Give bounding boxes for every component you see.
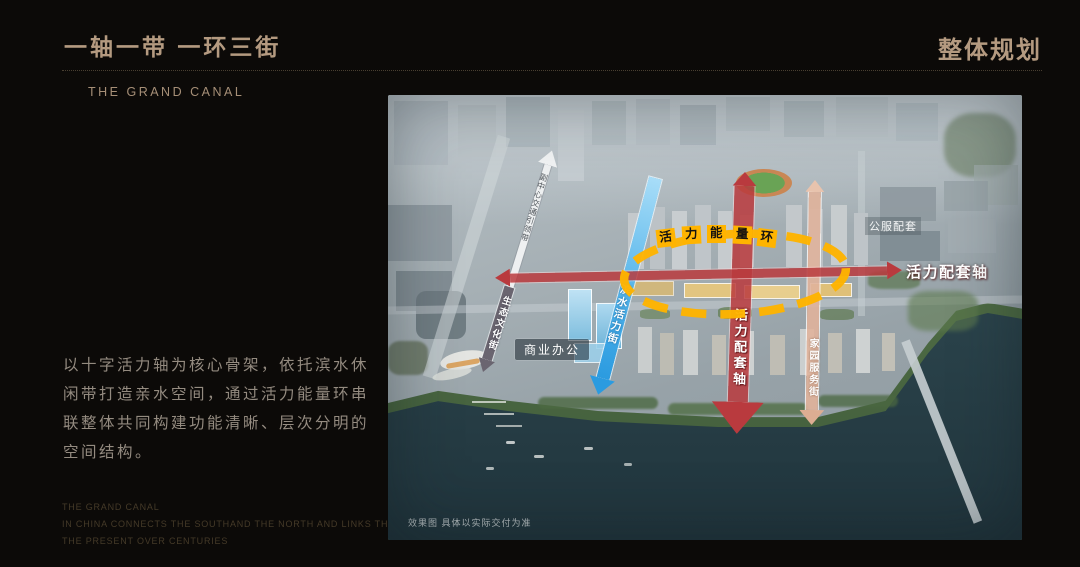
city-block (592, 101, 626, 145)
boat (486, 467, 494, 470)
header-divider (62, 70, 1042, 71)
city-block (836, 97, 888, 137)
energy-ring-char: 活 (655, 228, 676, 248)
boat (534, 455, 544, 458)
pier (484, 413, 514, 415)
city-block (394, 101, 448, 165)
energy-ring-char: 环 (757, 228, 778, 248)
trees (538, 397, 658, 409)
aerial-render: 副中心交通引领带 生态文化街 滨水活力街 家园服务街 活力配套轴 (388, 95, 1022, 540)
boat (506, 441, 515, 444)
commercial-office-label: 商业办公 (515, 339, 589, 360)
boat (584, 447, 593, 450)
city-block (458, 105, 496, 157)
arrow-up-icon (805, 180, 824, 192)
city-block (948, 219, 996, 253)
city-block (660, 333, 674, 375)
boat (624, 463, 632, 466)
arrow-left-icon (495, 269, 510, 287)
arrow-down-icon (799, 410, 824, 425)
energy-ring-label: 活 力 能 量 环 (656, 225, 777, 243)
arrow-up-icon (733, 172, 757, 187)
office-tower (568, 289, 592, 341)
energy-ring-char: 量 (732, 226, 751, 244)
city-block (638, 327, 652, 373)
arrow-right-icon (887, 261, 902, 279)
city-block (880, 187, 936, 221)
city-block (880, 231, 940, 261)
city-block (882, 333, 895, 371)
trees (908, 291, 978, 331)
city-block (784, 101, 824, 137)
city-block (388, 205, 452, 261)
page-title: 一轴一带 一环三街 (64, 28, 281, 62)
city-block (506, 97, 550, 147)
city-block (856, 329, 870, 373)
arrow-down-icon (711, 401, 764, 435)
trees (818, 395, 898, 407)
energy-ring-char: 能 (707, 225, 726, 243)
home-service-street-label: 家园服务街 (804, 338, 820, 398)
city-block (680, 105, 716, 145)
city-block (558, 109, 584, 181)
render-disclaimer: 效果图 具体以实际交付为准 (408, 516, 532, 529)
subtitle-en: THE GRAND CANAL (88, 85, 244, 99)
bridge (901, 339, 982, 523)
city-block (726, 97, 770, 131)
energy-ring-char: 力 (681, 226, 700, 244)
trees (388, 341, 428, 375)
city-block (683, 330, 698, 375)
city-block (944, 181, 988, 211)
pier (496, 425, 522, 427)
public-service-label: 公服配套 (865, 217, 921, 235)
presentation-slide: 一轴一带 一环三街 整体规划 THE GRAND CANAL 以十字活力轴为核心… (0, 0, 1080, 567)
city-block (828, 333, 842, 373)
city-block (636, 99, 670, 145)
city-block (896, 103, 938, 141)
city-block (770, 335, 785, 375)
pier (472, 401, 506, 403)
vitality-axis-horizontal-label: 活力配套轴 (906, 261, 989, 282)
description-paragraph: 以十字活力轴为核心骨架，依托滨水休闲带打造亲水空间，通过活力能量环串联整体共同构… (63, 351, 371, 467)
corner-title: 整体规划 (938, 30, 1042, 65)
